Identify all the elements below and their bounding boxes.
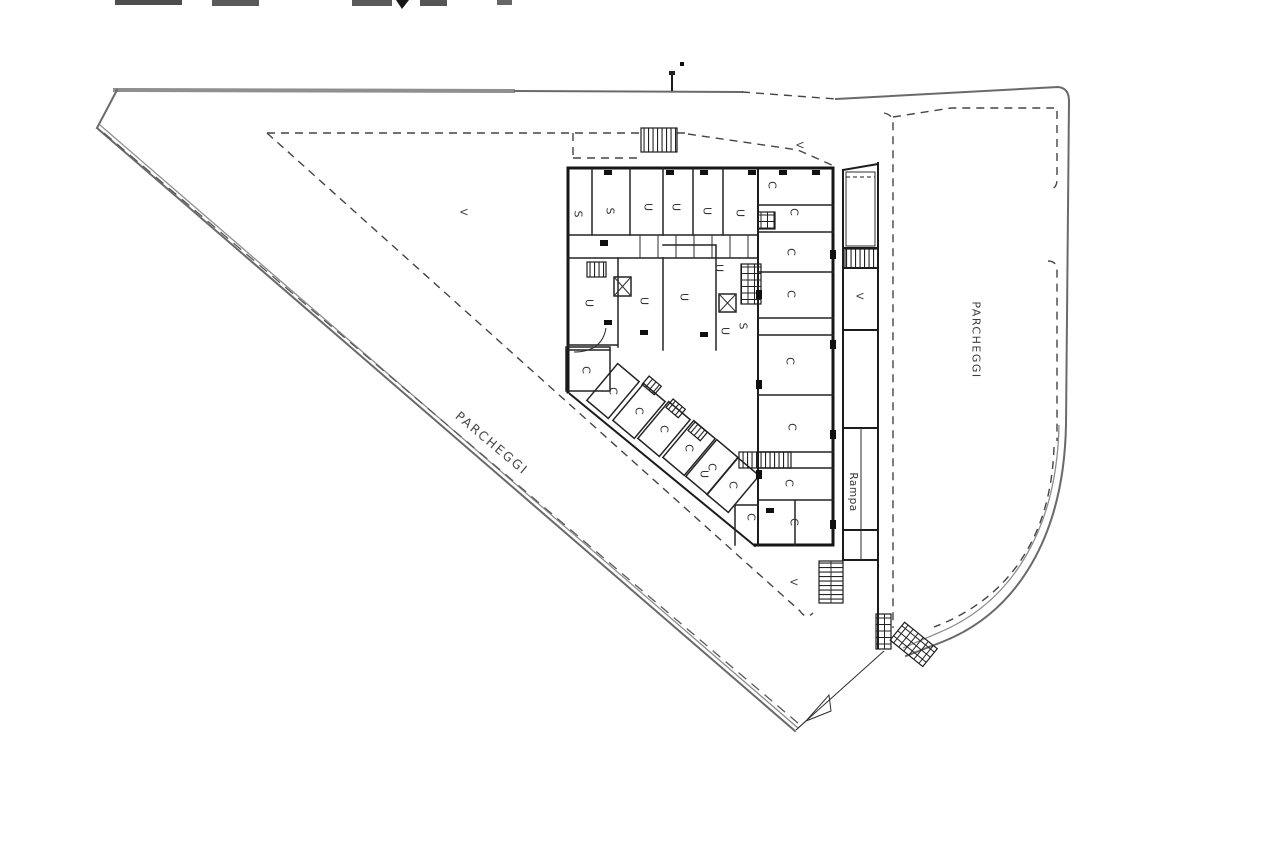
- stairs-upper-right: [758, 212, 775, 229]
- room-label-u: U: [638, 297, 651, 305]
- site-top-dashed: [742, 92, 836, 99]
- room-label-u: U: [642, 203, 655, 211]
- room-label-c: C: [783, 479, 796, 487]
- vent-label-v: V: [788, 579, 799, 586]
- site-tip-line: [797, 651, 884, 729]
- vent-labels: VVVV: [458, 142, 865, 586]
- inner-lot-top-dash: [267, 133, 688, 158]
- site-right-edge: [1066, 101, 1069, 425]
- stairs-south-grid: [876, 614, 891, 649]
- top-row-partition-walls: [592, 168, 723, 235]
- room-label-c: C: [607, 387, 620, 395]
- parcheggi-right-label: PARCHEGGI: [970, 301, 983, 378]
- stairs-top-band: [641, 128, 677, 152]
- survey-pole-head: [669, 71, 675, 75]
- site-curve-inner: [903, 425, 1059, 648]
- wall-marks: [600, 62, 836, 529]
- room-label-u: U: [701, 207, 714, 215]
- vent-label-v: V: [794, 142, 805, 149]
- room-label-u: U: [670, 203, 683, 211]
- parcheggi-diagonal-label: PARCHEGGI: [453, 408, 532, 478]
- inner-lot-hypotenuse-dash: [267, 133, 813, 616]
- room-label-s: S: [737, 323, 750, 330]
- room-label-c: C: [785, 290, 798, 298]
- right-column-walls: [735, 205, 833, 545]
- right-lot-dash-top: [893, 108, 1054, 117]
- room-label-s: S: [604, 208, 617, 215]
- floor-plan-page: PARCHEGGI PARCHEGGI Rampa SSUUUUCCCCUUUU…: [0, 0, 1279, 852]
- stairs: [587, 128, 937, 667]
- room-label-c: C: [786, 423, 799, 431]
- room-label-c: C: [784, 357, 797, 365]
- room-label-u: U: [719, 327, 732, 335]
- right-lot-dash-vertical: [884, 113, 893, 628]
- site-top-right-edge: [836, 87, 1069, 101]
- area-labels: PARCHEGGI PARCHEGGI Rampa: [453, 301, 983, 511]
- room-label-c: C: [788, 518, 801, 526]
- room-label-c: C: [788, 208, 801, 216]
- room-label-c: C: [580, 366, 593, 374]
- wing-top-room-inner: [846, 172, 875, 246]
- room-label-c: C: [633, 407, 646, 415]
- site-boundary: [97, 71, 1069, 731]
- room-label-u: U: [678, 293, 691, 301]
- room-label-c: C: [785, 248, 798, 256]
- elevator-1: [614, 277, 631, 296]
- room-label-c: C: [658, 425, 671, 433]
- tip-triangle-marker: [796, 695, 831, 730]
- room-label-c: C: [766, 181, 779, 189]
- stairs-diag-1: [642, 376, 661, 395]
- site-top-edge: [515, 91, 742, 92]
- room-label-c: C: [745, 513, 758, 521]
- room-label-u: U: [713, 264, 726, 272]
- room-label-u: U: [698, 470, 711, 478]
- stairs-south-ramp-grid: [890, 622, 937, 666]
- right-lot-bay-hook-2: [1048, 261, 1057, 441]
- floor-plan-svg: PARCHEGGI PARCHEGGI Rampa SSUUUUCCCCUUUU…: [0, 0, 1279, 852]
- inner-lot-link-dash: [688, 134, 834, 166]
- site-left-edge: [97, 90, 117, 128]
- door-swing-arc: [574, 328, 606, 352]
- vent-label-v: V: [458, 209, 469, 216]
- cropped-title-fragments: [115, 0, 512, 9]
- room-label-c: C: [683, 444, 696, 452]
- elevator-2: [719, 294, 736, 312]
- room-label-c: C: [706, 463, 719, 471]
- rampa-label: Rampa: [847, 472, 859, 511]
- room-label-u: U: [734, 209, 747, 217]
- vent-label-v: V: [854, 293, 865, 300]
- wing-walls: [843, 163, 878, 648]
- stairs-lower-right: [739, 452, 791, 468]
- room-label-u: U: [583, 299, 596, 307]
- diagonal-rooms: [587, 364, 759, 513]
- room-label-s: S: [572, 211, 585, 218]
- corridor-cell-walls: [640, 235, 748, 258]
- right-wing: [843, 163, 878, 648]
- room-label-c: C: [727, 481, 740, 489]
- site-curve-outer: [906, 425, 1066, 656]
- site-top-edge-thick: [113, 90, 515, 91]
- stairs-south: [819, 561, 843, 603]
- right-lot-bay-hook-1: [1048, 111, 1057, 189]
- stairs-wing: [845, 249, 878, 268]
- stairs-mid-left: [587, 262, 606, 277]
